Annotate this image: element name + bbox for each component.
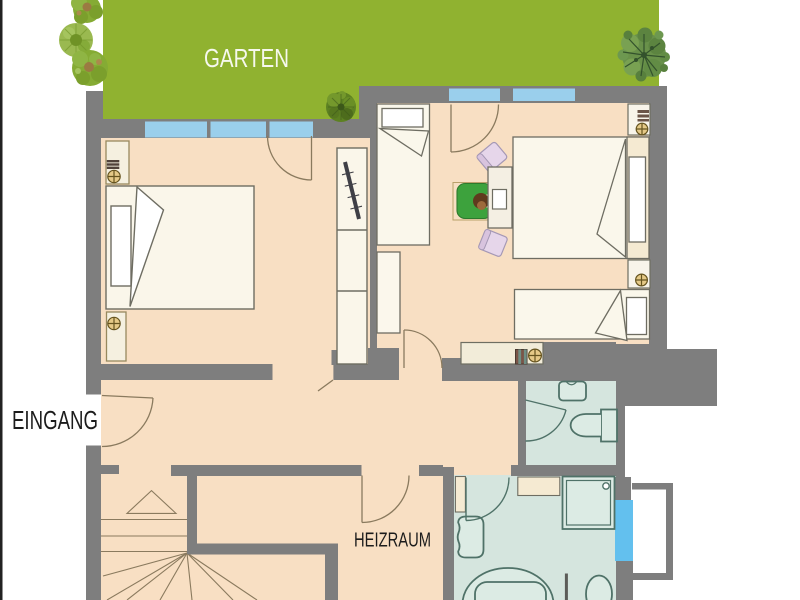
svg-text:EINGANG: EINGANG bbox=[12, 405, 98, 435]
svg-text:GARTEN: GARTEN bbox=[204, 45, 289, 73]
svg-text:HEIZRAUM: HEIZRAUM bbox=[354, 530, 431, 552]
